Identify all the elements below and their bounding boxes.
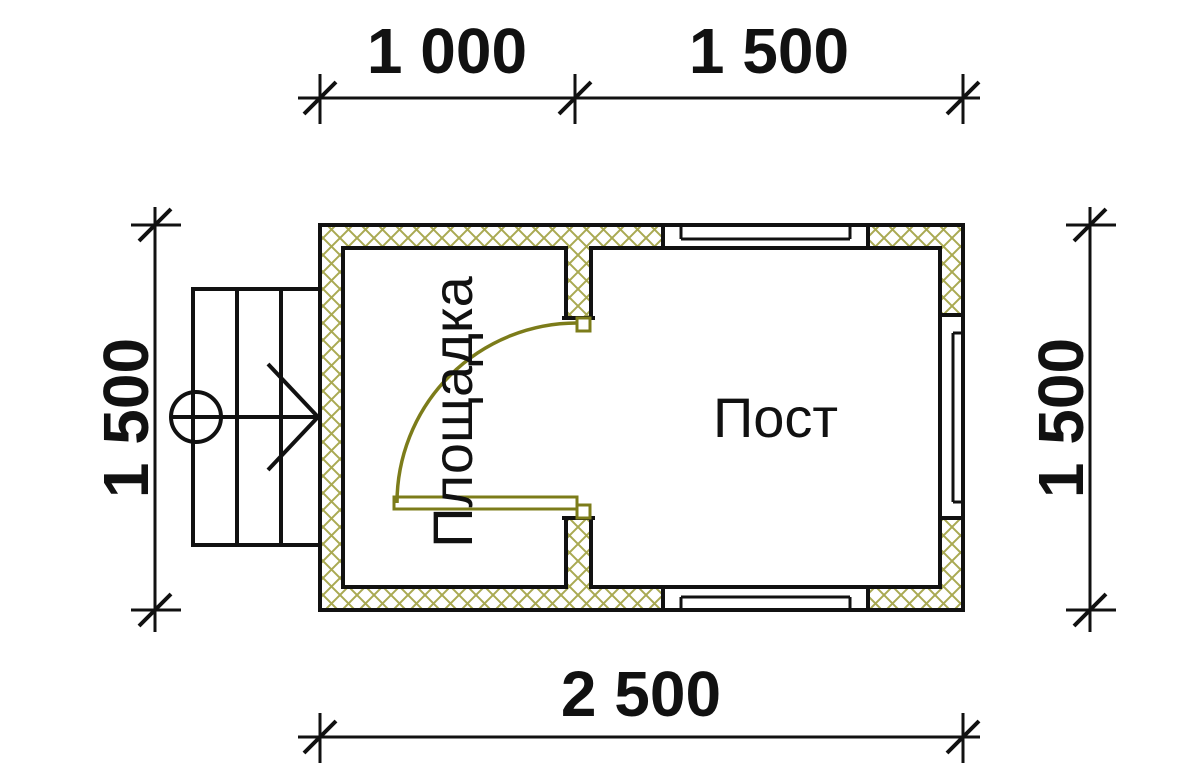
- window-bottom: [663, 587, 868, 610]
- top-dim-value-right: 1 500: [689, 15, 849, 87]
- floor-plan-page: VAN DA: [0, 0, 1200, 772]
- partition-door-opening: [562, 318, 595, 518]
- top-dimension: 1 000 1 500: [298, 15, 980, 124]
- window-top: [663, 225, 868, 248]
- top-dim-value-left: 1 000: [367, 15, 527, 87]
- right-dimension: 1 500: [1025, 207, 1116, 632]
- bottom-dimension: 2 500: [298, 658, 980, 763]
- door-lower-jamb-block: [577, 505, 590, 518]
- window-top-opening: [663, 227, 868, 246]
- right-dim-value: 1 500: [1025, 338, 1097, 498]
- window-right: [940, 315, 963, 518]
- left-dim-value: 1 500: [90, 338, 162, 498]
- bottom-dim-value: 2 500: [561, 658, 721, 730]
- stairs: [171, 289, 320, 545]
- left-dimension: 1 500: [90, 207, 181, 632]
- room-label-platform: Площадка: [421, 275, 484, 547]
- stair-arrowhead-upper: [268, 364, 318, 417]
- stair-arrowhead-lower: [268, 417, 318, 470]
- floor-plan-drawing: VAN DA: [0, 0, 1200, 772]
- room-label-post: Пост: [713, 386, 838, 449]
- exterior-walls: [320, 225, 963, 610]
- door-upper-jamb-block: [577, 318, 590, 331]
